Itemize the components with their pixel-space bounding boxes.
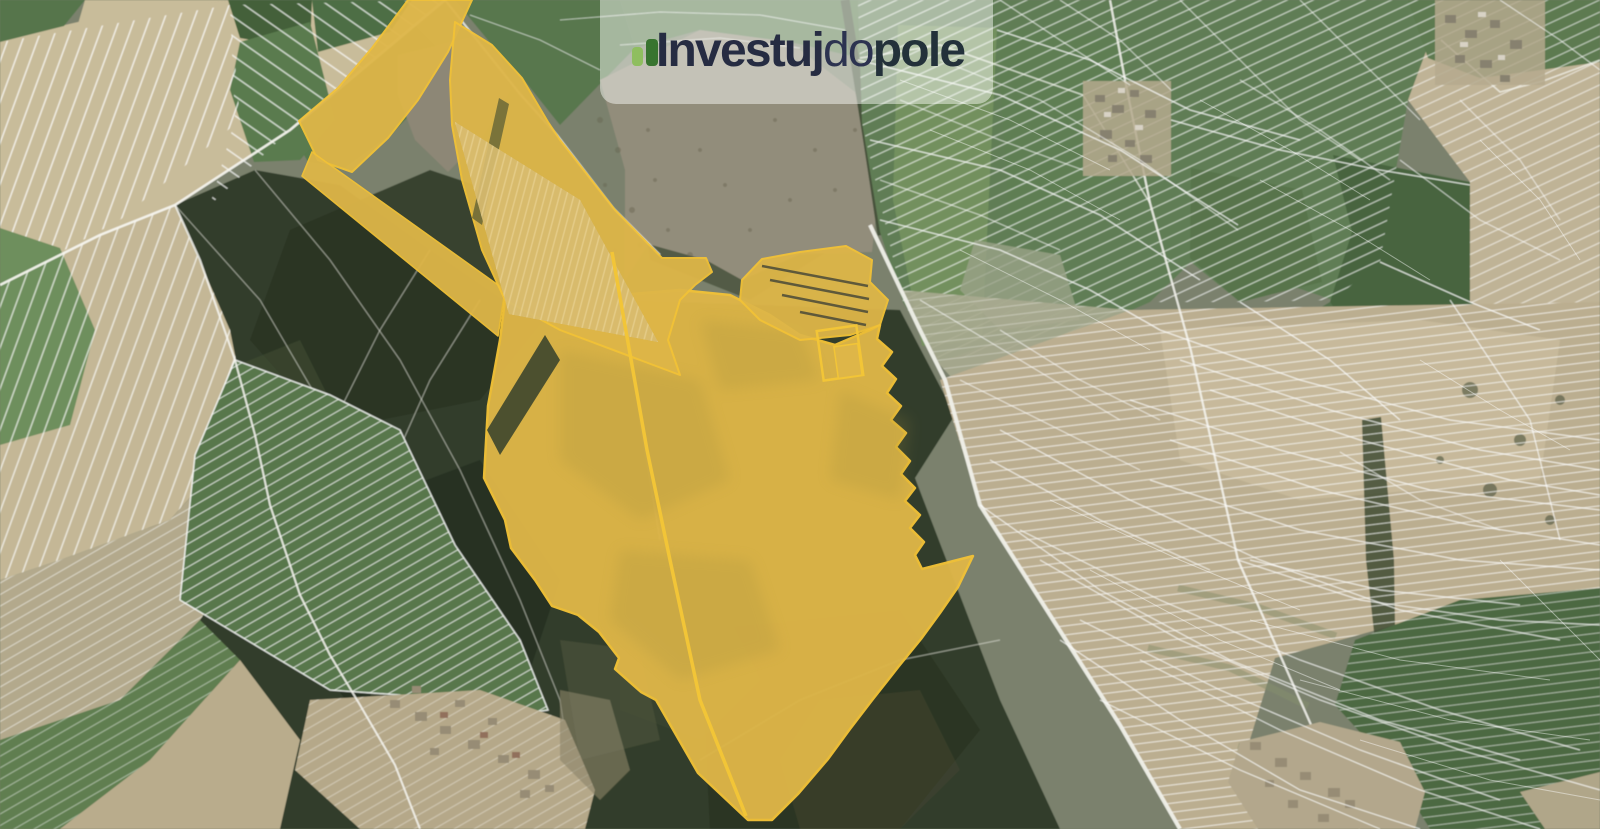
svg-text:Investujdopole: Investujdopole (656, 24, 965, 77)
